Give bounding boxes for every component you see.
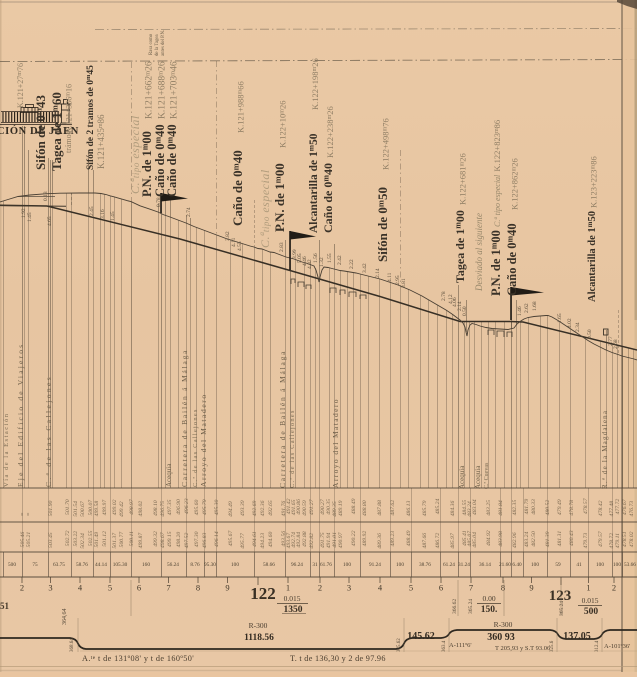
svg-text:1: 1 — [286, 583, 290, 593]
svg-text:Acequia: Acequia — [165, 463, 173, 487]
svg-text:498.20: 498.20 — [176, 532, 182, 548]
svg-text:497.35: 497.35 — [167, 499, 173, 515]
svg-text:2: 2 — [20, 583, 24, 593]
svg-text:479.73: 479.73 — [583, 533, 589, 549]
svg-text:4.55: 4.55 — [237, 241, 243, 251]
svg-text:5: 5 — [108, 583, 112, 593]
svg-text:496.23: 496.23 — [184, 498, 190, 514]
svg-text:477.72: 477.72 — [615, 499, 621, 515]
svg-text:8.76: 8.76 — [190, 562, 200, 568]
svg-text:488.80: 488.80 — [362, 500, 368, 516]
svg-text:3.16: 3.16 — [100, 209, 106, 219]
svg-text:489.92: 489.92 — [362, 531, 368, 547]
svg-text:485.24: 485.24 — [435, 499, 441, 515]
svg-text:492.36: 492.36 — [260, 500, 266, 516]
svg-text:Tagea de 1m00: Tagea de 1m00 — [453, 210, 467, 283]
svg-text:501.49: 501.49 — [94, 532, 100, 548]
svg-text:490.59: 490.59 — [302, 500, 308, 516]
svg-text:505.21: 505.21 — [26, 532, 32, 548]
svg-text:496.14: 496.14 — [214, 531, 220, 547]
svg-text:484.36: 484.36 — [450, 501, 456, 517]
svg-text:T. t de 136,30 y 2 de 97.96: T. t de 136,30 y 2 de 97.96 — [290, 654, 386, 663]
svg-text:31: 31 — [312, 562, 318, 568]
svg-text:483.04: 483.04 — [472, 499, 478, 515]
svg-text:C.ª Cuevas: C.ª Cuevas — [484, 462, 490, 489]
svg-text:498.02: 498.02 — [138, 501, 144, 517]
svg-text:Sifón de 0m50: Sifón de 0m50 — [375, 187, 390, 262]
svg-text:95.30: 95.30 — [204, 562, 216, 568]
svg-text:2.22: 2.22 — [349, 259, 355, 269]
svg-text:478.78: 478.78 — [569, 500, 575, 516]
svg-text:137.05: 137.05 — [563, 631, 591, 642]
svg-text:483.24: 483.24 — [524, 532, 530, 548]
svg-text:495.79: 495.79 — [202, 499, 208, 515]
svg-text:K.122+862m26: K.122+862m26 — [510, 158, 520, 210]
svg-text:482.50: 482.50 — [531, 531, 537, 547]
svg-text:368.64: 368.64 — [70, 638, 75, 652]
svg-text:8: 8 — [501, 583, 505, 593]
svg-text:Acequia: Acequia — [458, 465, 466, 489]
svg-text:500.77: 500.77 — [119, 531, 125, 548]
svg-text:486.72: 486.72 — [435, 533, 441, 549]
svg-text:0.13: 0.13 — [43, 191, 49, 201]
svg-text:365.24: 365.24 — [468, 599, 474, 614]
svg-text:0.50: 0.50 — [587, 329, 593, 339]
svg-text:498.67: 498.67 — [160, 531, 166, 548]
svg-text:494.23: 494.23 — [260, 533, 266, 549]
svg-text:497.30: 497.30 — [194, 531, 200, 547]
svg-text:498.97: 498.97 — [129, 498, 135, 515]
svg-text:492.69: 492.69 — [252, 501, 258, 517]
svg-text:496.90: 496.90 — [176, 499, 182, 515]
svg-text:59: 59 — [555, 562, 561, 568]
svg-text:56.24: 56.24 — [167, 562, 179, 568]
svg-text:500.67: 500.67 — [80, 500, 86, 517]
svg-text:500: 500 — [8, 562, 16, 568]
svg-text:K.121+988m66: K.121+988m66 — [236, 81, 246, 133]
svg-text:493.39: 493.39 — [240, 500, 246, 516]
svg-text:481.39: 481.39 — [545, 531, 551, 547]
svg-text:485.97: 485.97 — [450, 532, 456, 549]
svg-text:484.92: 484.92 — [486, 530, 492, 546]
svg-text:C.ªtipo especial: C.ªtipo especial — [258, 169, 272, 248]
svg-text:478.51: 478.51 — [622, 531, 628, 547]
svg-text:478.02: 478.02 — [629, 531, 635, 547]
svg-text:490.22: 490.22 — [351, 530, 357, 546]
svg-text:antes del P.N.: antes del P.N. — [161, 30, 166, 56]
svg-text:1.65: 1.65 — [557, 313, 563, 323]
svg-text:Caño de 0m40: Caño de 0m40 — [230, 150, 245, 226]
svg-text:364,64: 364,64 — [62, 609, 68, 626]
svg-text:1.55: 1.55 — [327, 253, 333, 263]
svg-text:P.N. de 1m00: P.N. de 1m00 — [140, 131, 154, 197]
svg-text:K.122+10m26: K.122+10m26 — [278, 101, 288, 148]
svg-text:A-101º36': A-101º36' — [604, 643, 630, 650]
svg-text:478.57: 478.57 — [583, 497, 589, 514]
svg-text:100: 100 — [396, 562, 404, 568]
svg-text:K.121+688m26: K.121+688m26 — [158, 61, 168, 119]
svg-text:3.42: 3.42 — [362, 263, 368, 273]
svg-text:5: 5 — [409, 583, 413, 593]
svg-text:Caño de 0m40: Caño de 0m40 — [165, 124, 179, 197]
svg-text:499.32: 499.32 — [153, 531, 159, 547]
svg-text:3: 3 — [347, 583, 351, 593]
svg-text:41: 41 — [576, 562, 582, 568]
svg-text:482.35: 482.35 — [512, 500, 518, 516]
svg-text:365.24: 365.24 — [559, 601, 565, 616]
svg-text:Acequia: Acequia — [474, 465, 482, 489]
svg-text:0.015: 0.015 — [284, 594, 301, 603]
svg-text:100: 100 — [231, 562, 239, 568]
svg-text:1118.56: 1118.56 — [244, 633, 274, 643]
svg-text:R-300: R-300 — [494, 620, 513, 629]
svg-text:479.57: 479.57 — [598, 530, 604, 547]
svg-text:489.36: 489.36 — [377, 533, 383, 549]
svg-text:trámos: trámos — [64, 131, 73, 153]
svg-text:4.65: 4.65 — [47, 216, 53, 226]
svg-text:C.ª de las Callejones: C.ª de las Callejones — [289, 409, 296, 488]
svg-text:494.60: 494.60 — [268, 532, 274, 548]
svg-text:R.ª de la Magdalena: R.ª de la Magdalena — [601, 410, 609, 489]
svg-text:1.32: 1.32 — [319, 257, 325, 267]
svg-text:51: 51 — [0, 601, 10, 611]
svg-text:122: 122 — [250, 584, 276, 603]
svg-text:2.83: 2.83 — [279, 242, 285, 252]
svg-text:500.11: 500.11 — [129, 531, 135, 546]
svg-text:2.42: 2.42 — [337, 255, 343, 265]
svg-text:487.62: 487.62 — [390, 500, 396, 516]
svg-text:160: 160 — [142, 562, 150, 568]
svg-text:K.121+703m46: K.121+703m46 — [170, 61, 180, 119]
svg-text:501.37: 501.37 — [112, 532, 118, 549]
svg-text:481.79: 481.79 — [524, 499, 530, 515]
svg-text:Tagea de 1m60: Tagea de 1m60 — [49, 92, 64, 171]
svg-text:8: 8 — [196, 583, 200, 593]
svg-text:7: 7 — [469, 583, 473, 593]
svg-text:345.62: 345.62 — [397, 638, 402, 652]
svg-text:2.34: 2.34 — [575, 322, 581, 332]
svg-text:100: 100 — [343, 562, 351, 568]
svg-text:483.98: 483.98 — [498, 531, 504, 547]
svg-text:501.54: 501.54 — [73, 501, 79, 517]
svg-text:2.14: 2.14 — [375, 268, 381, 278]
svg-text:496.75: 496.75 — [160, 501, 166, 517]
svg-text:312.4: 312.4 — [595, 640, 600, 652]
svg-text:7: 7 — [166, 583, 170, 593]
svg-text:100: 100 — [596, 562, 604, 568]
svg-text:Arroyo del Matadero: Arroyo del Matadero — [199, 393, 208, 487]
svg-text:K.121+662m26: K.121+662m26 — [145, 61, 155, 119]
svg-text:487.66: 487.66 — [422, 533, 428, 549]
svg-text:496.83: 496.83 — [202, 533, 208, 549]
svg-text:6: 6 — [439, 583, 443, 593]
svg-text:Arroyo del Matadero: Arroyo del Matadero — [331, 398, 340, 488]
svg-text:481.84: 481.84 — [498, 500, 504, 516]
svg-text:360 93: 360 93 — [487, 632, 515, 643]
svg-text:476.73: 476.73 — [629, 501, 635, 517]
svg-text:P.N. de 1m00: P.N. de 1m00 — [272, 163, 287, 232]
svg-text:4.11: 4.11 — [387, 272, 393, 282]
svg-text:R-300: R-300 — [249, 621, 268, 630]
svg-text:44.14: 44.14 — [95, 562, 107, 568]
svg-text:489.23: 489.23 — [390, 531, 396, 547]
svg-text:491.27: 491.27 — [309, 498, 315, 515]
svg-text:490.97: 490.97 — [338, 531, 344, 548]
svg-text:K.121+336m16: K.121+336m16 — [65, 84, 74, 133]
svg-text:75: 75 — [32, 562, 38, 568]
svg-text:Caño de 0m40: Caño de 0m40 — [321, 163, 335, 233]
svg-text:492.65: 492.65 — [268, 500, 274, 516]
svg-text:0.00: 0.00 — [482, 594, 495, 603]
svg-text:A-111º6': A-111º6' — [449, 642, 472, 649]
svg-text:58.66: 58.66 — [263, 562, 275, 568]
svg-text:0.015: 0.015 — [582, 596, 599, 605]
svg-text:499.02: 499.02 — [112, 499, 118, 515]
svg-text:21.60: 21.60 — [499, 562, 511, 568]
svg-text:C.ª de las Callejones: C.ª de las Callejones — [192, 408, 199, 487]
svg-text:481.31: 481.31 — [557, 531, 563, 547]
svg-text:1.68: 1.68 — [532, 301, 538, 311]
svg-text:2: 2 — [318, 583, 322, 593]
svg-text:501.12: 501.12 — [102, 531, 108, 547]
svg-text:58.76: 58.76 — [76, 562, 88, 568]
svg-text:366.62: 366.62 — [452, 599, 458, 614]
svg-text:61.24: 61.24 — [443, 562, 455, 568]
svg-text:Carretera de Bailén á Málaga: Carretera de Bailén á Málaga — [180, 349, 189, 487]
svg-text:91.24: 91.24 — [369, 562, 381, 568]
svg-text:Desviado al siguiente: Desviado al siguiente — [474, 213, 484, 292]
svg-text:488.49: 488.49 — [351, 498, 357, 514]
svg-text:1: 1 — [586, 583, 590, 593]
svg-text:Vía de la Estación: Vía de la Estación — [3, 413, 10, 487]
svg-text:0.78: 0.78 — [156, 197, 162, 207]
svg-text:494.61: 494.61 — [252, 531, 258, 547]
svg-text:479.11: 479.11 — [615, 533, 621, 548]
svg-text:T 205,93 y S.T 93.06: T 205,93 y S.T 93.06 — [495, 645, 551, 652]
svg-text:485.04: 485.04 — [472, 532, 478, 548]
svg-text:6.40: 6.40 — [512, 562, 522, 568]
svg-text:K.123+223m86: K.123+223m86 — [589, 156, 599, 208]
svg-text:9: 9 — [529, 583, 533, 593]
svg-text:482.96: 482.96 — [512, 532, 518, 548]
svg-text:503.22: 503.22 — [73, 531, 79, 547]
svg-text:Eje del Edificio de Viajeros: Eje del Edificio de Viajeros — [16, 343, 25, 487]
svg-text:3.81: 3.81 — [401, 278, 407, 288]
svg-text:105.30: 105.30 — [113, 562, 128, 568]
svg-text:100: 100 — [531, 562, 539, 568]
svg-text:487.88: 487.88 — [377, 500, 383, 516]
svg-text:K.122+681m26: K.122+681m26 — [458, 153, 468, 205]
svg-text:4.02: 4.02 — [567, 318, 573, 328]
svg-text:K.122+498m76: K.122+498m76 — [381, 118, 391, 170]
svg-text:Carretera de Bailén á Málaga: Carretera de Bailén á Málaga — [278, 350, 287, 488]
svg-text:501.90: 501.90 — [48, 501, 54, 517]
svg-text:1.45: 1.45 — [27, 212, 33, 222]
svg-text:499.97: 499.97 — [102, 499, 108, 516]
svg-text:499.42: 499.42 — [119, 501, 125, 517]
svg-text:495.60: 495.60 — [194, 500, 200, 516]
svg-text:495.77: 495.77 — [240, 532, 246, 549]
svg-text:96.24: 96.24 — [291, 562, 303, 568]
svg-text:2: 2 — [612, 583, 616, 593]
svg-text:476.67: 476.67 — [622, 498, 628, 515]
svg-text:K.121+435m86: K.121+435m86 — [96, 114, 106, 169]
svg-text:Rasa como: Rasa como — [149, 33, 154, 55]
svg-text:Sifón de 0m43: Sifón de 0m43 — [33, 95, 48, 171]
svg-text:53.66: 53.66 — [624, 562, 636, 568]
svg-text:503.45: 503.45 — [48, 532, 54, 548]
svg-text:145.62: 145.62 — [407, 631, 435, 642]
svg-text:36.14: 36.14 — [479, 562, 491, 568]
svg-text:494.49: 494.49 — [228, 501, 234, 517]
svg-text:480.33: 480.33 — [531, 499, 537, 515]
svg-text:63.75: 63.75 — [53, 562, 65, 568]
svg-text:61.76: 61.76 — [320, 562, 332, 568]
svg-text:363.4: 363.4 — [442, 640, 447, 652]
svg-text:K.122+198m26: K.122+198m26 — [310, 58, 320, 110]
svg-text:100: 100 — [613, 562, 621, 568]
svg-text:de la Tagea: de la Tagea — [155, 33, 160, 56]
svg-text:492.82: 492.82 — [309, 533, 315, 549]
svg-text:489.19: 489.19 — [338, 500, 344, 516]
svg-text:480.52: 480.52 — [545, 500, 551, 516]
svg-text:498.10: 498.10 — [153, 500, 159, 516]
svg-text:478.42: 478.42 — [598, 500, 604, 516]
svg-text:325.6: 325.6 — [550, 640, 555, 652]
svg-text:492.88: 492.88 — [302, 531, 308, 547]
svg-text:479.49: 479.49 — [557, 499, 563, 515]
svg-text:K.122+238m26: K.122+238m26 — [325, 106, 335, 158]
svg-text:502.72: 502.72 — [65, 530, 71, 546]
svg-text:488.49: 488.49 — [406, 530, 412, 546]
svg-text:499.87: 499.87 — [138, 532, 144, 549]
svg-text:2.68: 2.68 — [613, 339, 619, 349]
svg-text:497.52: 497.52 — [184, 533, 190, 549]
svg-text:485.79: 485.79 — [422, 500, 428, 516]
svg-text:150.: 150. — [481, 605, 498, 615]
svg-text:480.43: 480.43 — [569, 530, 575, 546]
svg-text:Sifón de 2 tramos de 0m45: Sifón de 2 tramos de 0m45 — [85, 65, 96, 170]
svg-text:9: 9 — [225, 583, 229, 593]
svg-text:1.46: 1.46 — [517, 306, 523, 316]
svg-text:2.62: 2.62 — [524, 303, 530, 313]
svg-text:38.76: 38.76 — [419, 562, 431, 568]
svg-text:C.ª de las Callejones: C.ª de las Callejones — [44, 375, 53, 487]
svg-text:31.24: 31.24 — [458, 562, 470, 568]
svg-text:486.13: 486.13 — [406, 501, 412, 517]
svg-text:499.58: 499.58 — [94, 501, 100, 517]
svg-text:6: 6 — [137, 583, 141, 593]
svg-text:499.15: 499.15 — [167, 531, 173, 547]
svg-text:2.45: 2.45 — [89, 206, 95, 216]
svg-text:2.78: 2.78 — [441, 291, 447, 301]
svg-text:A.te t de 131º08' y t de 160º5: A.te t de 131º08' y t de 160º50' — [82, 654, 194, 663]
svg-text:495.30: 495.30 — [214, 500, 220, 516]
svg-text:501.70: 501.70 — [65, 499, 71, 515]
svg-text:483.25: 483.25 — [486, 500, 492, 516]
svg-text:1.45: 1.45 — [110, 211, 116, 221]
svg-text:500: 500 — [584, 607, 599, 617]
svg-text:495.67: 495.67 — [228, 530, 234, 547]
svg-text:502.34: 502.34 — [80, 533, 86, 549]
svg-text:2.74: 2.74 — [186, 207, 192, 217]
svg-text:3: 3 — [48, 583, 52, 593]
svg-text:K.121+27m76: K.121+27m76 — [16, 63, 25, 108]
svg-text:Caño de 0m40: Caño de 0m40 — [505, 223, 519, 296]
svg-text:0.50: 0.50 — [462, 306, 468, 316]
